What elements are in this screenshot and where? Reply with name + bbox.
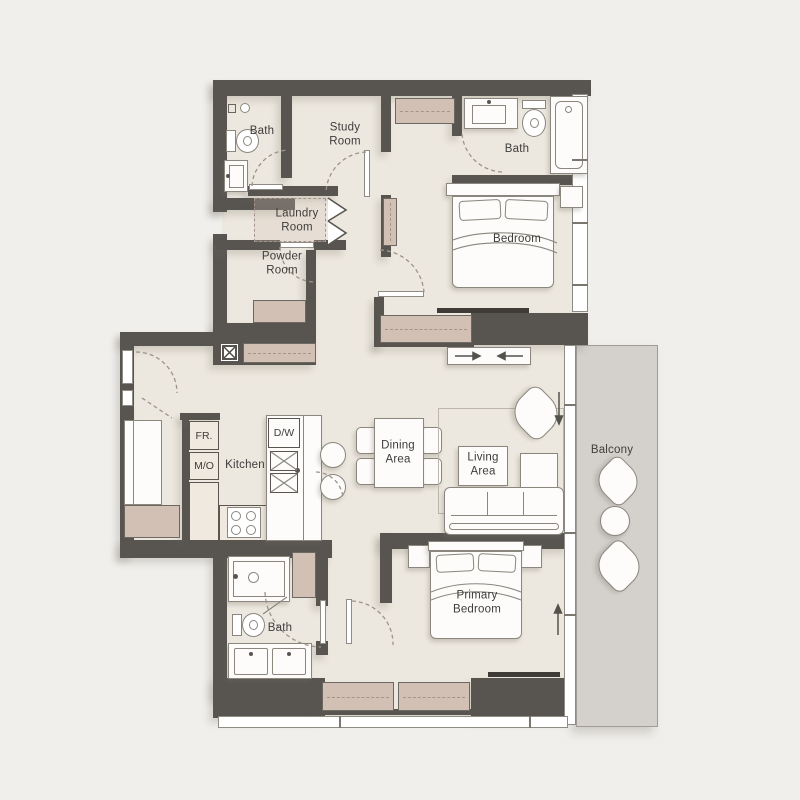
stool-2 [320,474,346,500]
sink-bath1 [224,160,248,192]
label-bath-bottom: Bath [268,622,292,636]
bed-pillow-right [505,199,549,221]
sliding-door-panel [447,347,531,365]
dining-chair-2 [356,458,375,485]
wall-bottom-left-chunk [213,678,325,718]
door-primary [346,599,352,644]
toilet-bath2 [520,100,548,138]
closet-hall-top [395,98,455,124]
label-bath-top-left: Bath [250,125,274,139]
double-vanity [228,643,312,679]
kitchen-sink-1 [270,451,298,471]
floor-plan: FR. M/O D/W [0,0,800,800]
label-balcony: Balcony [591,444,633,458]
tv-primary [488,672,560,677]
dishwasher-label: D/W [268,418,300,448]
primary-bed-headboard [428,541,524,551]
floor-hallway-link [316,300,378,350]
wall-kitchen-col-cap [180,413,220,420]
micro-oven-label: M/O [189,452,219,480]
bed-pillow-left [459,199,502,221]
wall-bottom-right-chunk [471,678,568,718]
primary-pillow-right [478,553,517,573]
nightstand-primary-left [408,545,430,568]
bathtub [550,96,588,174]
kitchen-sink-2 [270,473,298,493]
door-powder [280,242,314,248]
stove [227,507,261,538]
stool-1 [320,442,346,468]
balcony-table [600,506,630,536]
window-bottom [218,716,568,728]
closet-study-side [383,198,397,246]
closet-primary-south-a [322,682,394,711]
label-laundry-room: Laundry Room [276,207,319,234]
door-bath3 [320,600,326,644]
drain-icon-b [240,103,250,113]
label-bath-top-right: Bath [505,143,529,157]
window-balcony-glass [564,345,576,725]
shower [228,556,290,602]
vanity-bath2 [464,98,518,129]
closet-bath3-side [292,552,316,598]
label-powder-room: Powder Room [262,250,302,277]
wall-vestibule-right [380,533,392,603]
entry-door-panel-a [122,350,133,384]
closet-kitchen-top [243,343,316,363]
wall-top [213,80,591,96]
shower-drain [248,572,259,583]
label-living-area: Living Area [467,451,498,478]
dining-chair-1 [356,427,375,454]
primary-pillow-left [436,553,475,573]
label-kitchen: Kitchen [225,459,265,473]
nightstand-bedroom [560,186,583,208]
label-bedroom: Bedroom [493,233,541,247]
label-primary-bedroom: Primary Bedroom [453,589,501,616]
entry-tall-cabinet [124,420,162,505]
wall-bath3-left [213,552,227,698]
door-study [364,150,370,197]
tv-bedroom [437,308,529,313]
label-dining-area: Dining Area [381,439,415,466]
wall-entry-top [120,332,217,346]
wall-kitchen-col-spine [182,415,189,541]
side-table-living [520,453,558,490]
closet-bedroom-south [380,315,472,343]
kitchen-counter-left [189,482,219,541]
closet-primary-south-b [398,682,470,711]
wall-bath3-right-upper [316,556,328,606]
shower-valve [233,574,238,579]
door-bedroom [378,291,424,297]
drain-icon-a [228,104,236,113]
wall-powder-right [306,250,316,328]
wall-bedroom-bottom [471,313,588,345]
toilet-bath3 [232,612,266,638]
wall-study-right-upper [381,96,391,152]
shaft-box [221,344,238,361]
sofa [444,487,564,535]
wall-bath1-right [281,96,292,178]
label-study-room: Study Room [329,121,360,148]
door-bath1 [249,184,283,190]
kitchen-faucet [295,468,300,473]
balcony-floor [576,345,658,727]
bed-headboard [446,183,560,196]
wall-bath1-left [213,80,227,212]
fridge-label: FR. [189,421,219,450]
closet-entry-pantry [124,505,180,538]
closet-powder-shelf [253,300,306,323]
entry-door-panel-b [122,390,133,406]
